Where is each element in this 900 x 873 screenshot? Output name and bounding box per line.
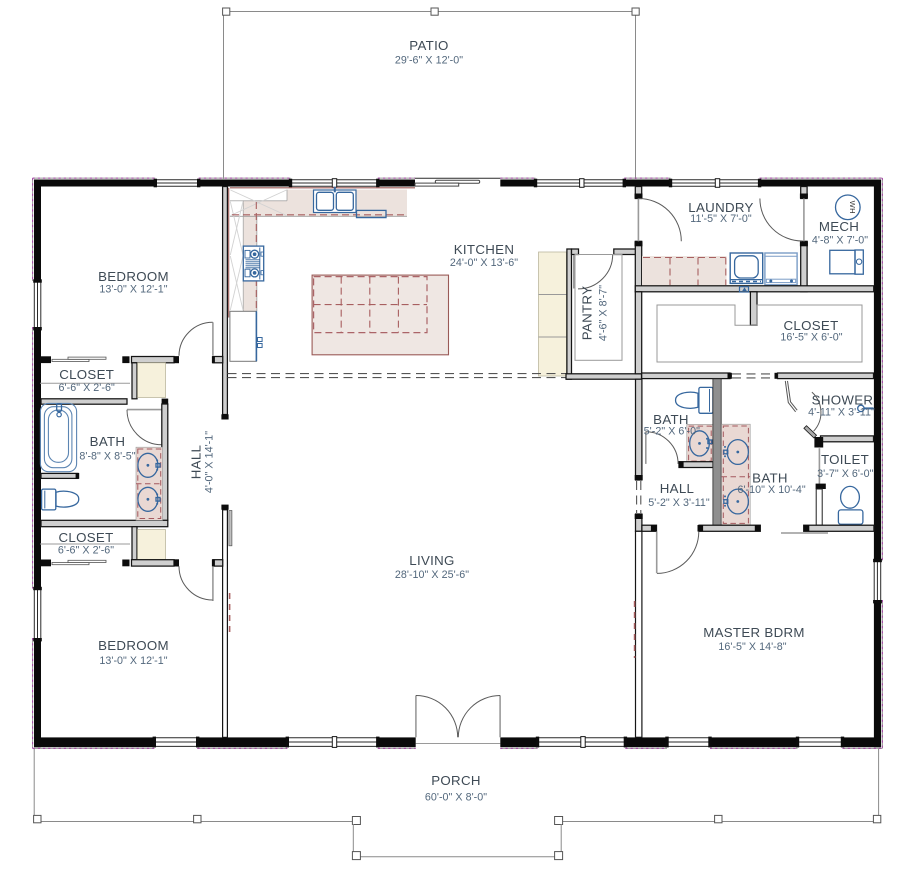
svg-text:KITCHEN: KITCHEN (454, 242, 514, 257)
svg-text:13'-0" X 12'-1": 13'-0" X 12'-1" (99, 655, 167, 667)
svg-text:MECH: MECH (819, 219, 859, 234)
svg-text:4'-11" X 3'-11": 4'-11" X 3'-11" (808, 407, 875, 419)
svg-text:3'-7" X 6'-0": 3'-7" X 6'-0" (817, 468, 873, 480)
svg-text:24'-0" X 13'-6": 24'-0" X 13'-6" (450, 257, 518, 269)
svg-text:60'-0" X 8'-0": 60'-0" X 8'-0" (425, 792, 487, 804)
svg-text:16'-5" X 14'-8": 16'-5" X 14'-8" (718, 641, 786, 653)
svg-text:BATH: BATH (90, 434, 126, 449)
svg-text:CLOSET: CLOSET (59, 367, 114, 382)
svg-text:4'-6" X 8'-7": 4'-6" X 8'-7" (597, 285, 609, 341)
svg-text:4'-8" X 7'-0": 4'-8" X 7'-0" (812, 235, 868, 247)
svg-text:LIVING: LIVING (409, 553, 454, 568)
svg-text:PATIO: PATIO (409, 38, 448, 53)
svg-text:6'-6" X 2'-6": 6'-6" X 2'-6" (59, 382, 115, 394)
svg-text:BEDROOM: BEDROOM (98, 638, 169, 653)
svg-text:SHOWER: SHOWER (812, 393, 874, 408)
svg-text:HALL: HALL (189, 445, 204, 479)
svg-text:29'-6" X 12'-0": 29'-6" X 12'-0" (395, 55, 463, 67)
svg-text:PANTRY: PANTRY (580, 286, 595, 341)
svg-text:PORCH: PORCH (431, 773, 481, 788)
svg-text:6'-10" X 10'-4": 6'-10" X 10'-4" (737, 484, 805, 496)
svg-text:8'-8" X 8'-5": 8'-8" X 8'-5" (79, 451, 135, 463)
svg-text:5'-2" X 3'-11": 5'-2" X 3'-11" (648, 497, 710, 509)
svg-text:TOILET: TOILET (821, 452, 869, 467)
svg-text:13'-0" X 12'-1": 13'-0" X 12'-1" (99, 284, 167, 296)
svg-text:CLOSET: CLOSET (58, 530, 113, 545)
svg-text:HALL: HALL (660, 481, 694, 496)
svg-text:11'-5" X 7'-0": 11'-5" X 7'-0" (690, 213, 752, 225)
svg-text:BEDROOM: BEDROOM (98, 269, 169, 284)
svg-text:5'-2" X 6'-0": 5'-2" X 6'-0" (644, 426, 700, 438)
svg-text:16'-5" X 6'-0": 16'-5" X 6'-0" (780, 332, 842, 344)
svg-text:28'-10" X 25'-6": 28'-10" X 25'-6" (395, 569, 469, 581)
svg-text:WH: WH (848, 201, 857, 214)
svg-text:6'-6" X 2'-6": 6'-6" X 2'-6" (58, 545, 114, 557)
svg-text:4'-0" X 14'-1": 4'-0" X 14'-1" (203, 431, 215, 493)
svg-text:MASTER BDRM: MASTER BDRM (703, 625, 805, 640)
